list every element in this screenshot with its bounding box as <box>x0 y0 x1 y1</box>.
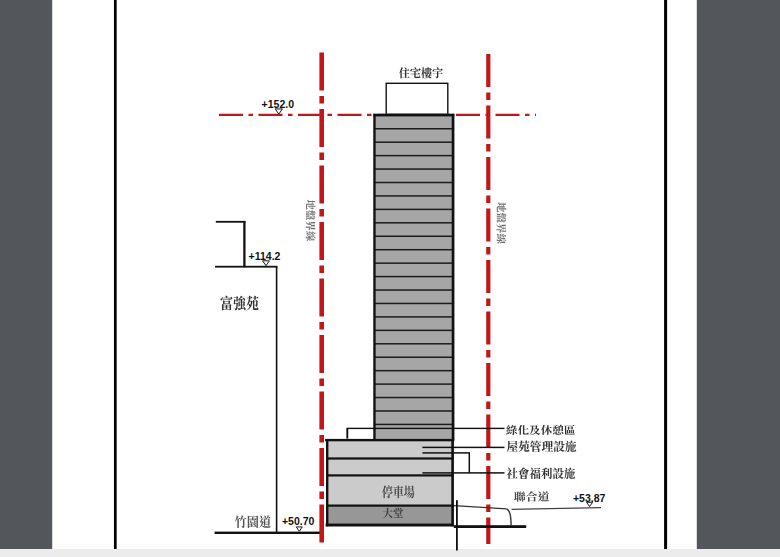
svg-text:+50.70: +50.70 <box>282 515 315 527</box>
svg-text:+152.0: +152.0 <box>262 98 295 110</box>
